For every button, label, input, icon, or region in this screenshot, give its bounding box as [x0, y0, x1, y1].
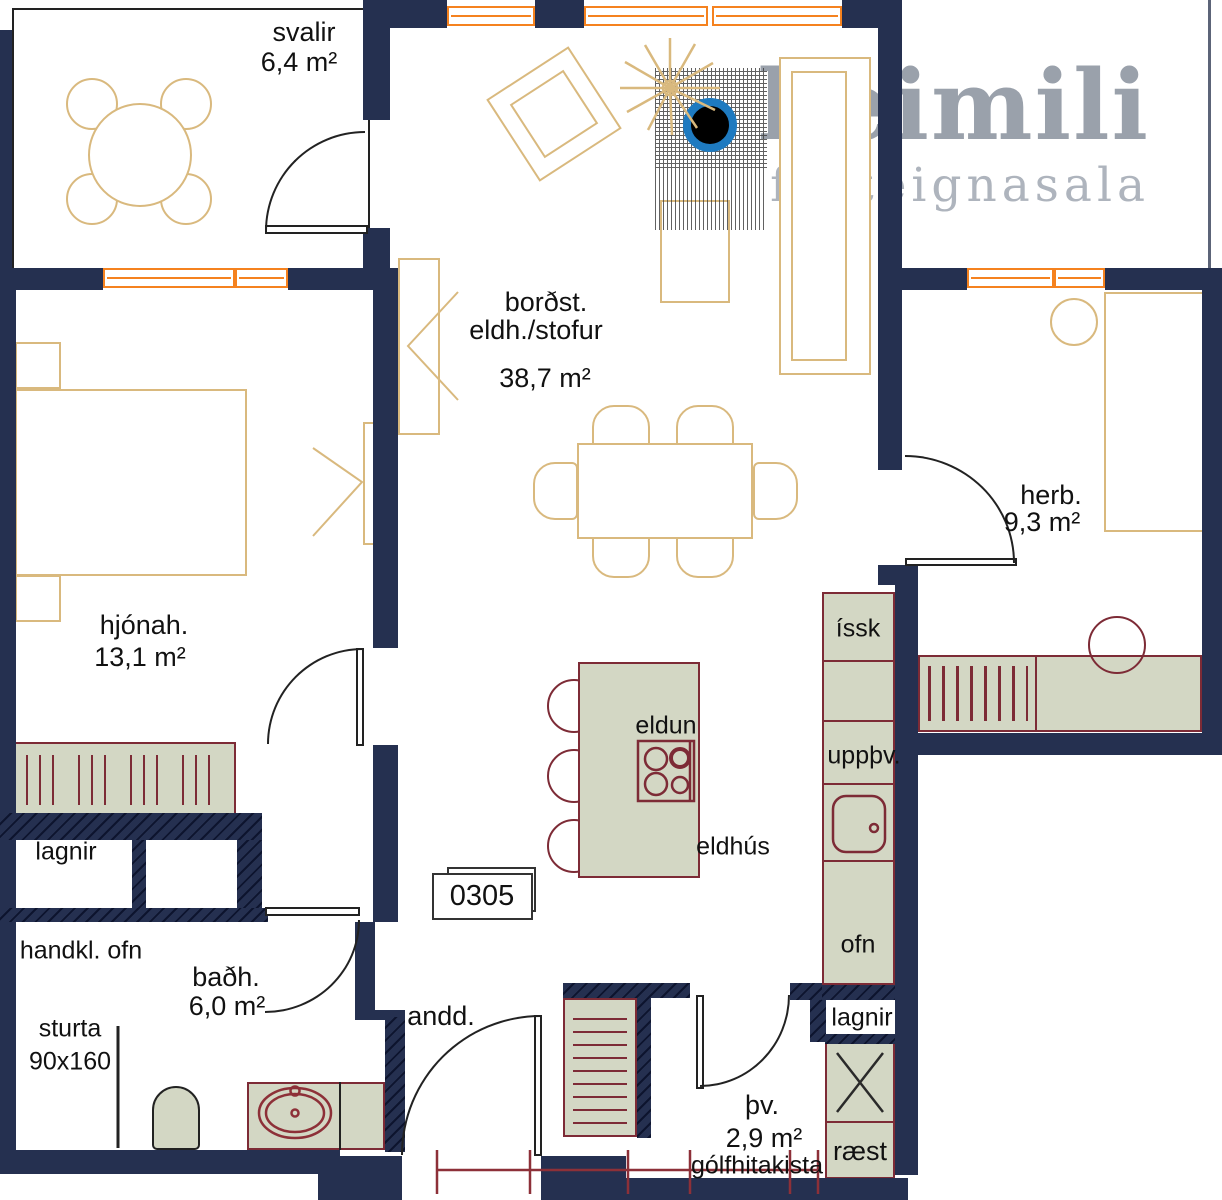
label-handkl-ofn: handkl. ofn: [20, 937, 142, 965]
wall: [373, 268, 398, 648]
window: [447, 6, 535, 26]
hatched-wall: [825, 1034, 895, 1044]
nightstand: [15, 575, 61, 622]
wall: [535, 0, 584, 28]
label-hjonah: hjónah.: [100, 611, 189, 641]
window: [1054, 268, 1105, 288]
sofa-cushions: [791, 71, 847, 361]
label-living-1: borðst.: [505, 288, 588, 318]
bathroom-door-leaf: [265, 907, 360, 916]
label-living-area: 38,7 m²: [499, 364, 591, 394]
toilet: [152, 1086, 200, 1150]
window: [584, 6, 708, 26]
dining-table: [577, 443, 753, 539]
bathroom-door-arc: [265, 920, 360, 1013]
neighbor-wall-line: [1208, 0, 1211, 268]
nightstand: [15, 342, 61, 389]
wall: [1202, 268, 1222, 755]
label-badh-area: 6,0 m²: [189, 992, 266, 1022]
label-issk: íssk: [836, 615, 880, 643]
bath-sink-counter: [247, 1082, 385, 1150]
label-thv: þv.: [745, 1091, 779, 1121]
label-lagnir-left: lagnir: [35, 838, 96, 866]
label-thv-area: 2,9 m²: [726, 1124, 803, 1154]
label-sturta-size: 90x160: [29, 1048, 111, 1076]
sink-cabinet: [822, 783, 895, 862]
dining-chair: [592, 533, 650, 578]
hall-cabinet-shelves: [573, 1012, 627, 1124]
hatched-wall: [810, 1000, 826, 1042]
hatched-wall: [0, 813, 262, 840]
window: [103, 268, 235, 288]
wall: [0, 268, 16, 1154]
wall: [878, 268, 902, 470]
bedroom-door-arc: [267, 648, 363, 744]
label-golfhitakista: gólfhitakista: [691, 1152, 823, 1180]
label-herb-area: 9,3 m²: [1004, 508, 1081, 538]
logo-marker-dot: [683, 98, 737, 152]
hatched-wall: [132, 840, 146, 910]
logo-halftone-rug: [655, 168, 767, 230]
wall: [0, 30, 12, 270]
kitchen-cabinet: [822, 660, 895, 722]
oven-cabinet: [822, 860, 895, 985]
label-hjonah-area: 13,1 m²: [94, 643, 186, 673]
double-bed: [15, 389, 247, 576]
label-uppthv: uppþv.: [827, 742, 900, 770]
label-lagnir-right: lagnir: [831, 1004, 892, 1032]
label-badh: baðh.: [192, 963, 260, 993]
wall: [902, 268, 967, 290]
window: [967, 268, 1054, 288]
label-ofn: ofn: [841, 931, 876, 959]
dining-chair: [533, 462, 578, 520]
label-andd: andd.: [407, 1002, 475, 1032]
window: [712, 6, 842, 26]
label-eldun: eldun: [635, 712, 696, 740]
wall: [318, 1156, 402, 1200]
entrance-door-arc: [401, 1015, 541, 1155]
lounge-chair: [486, 46, 622, 182]
balcony-table: [88, 103, 192, 207]
hatched-wall: [637, 998, 651, 1138]
wall: [878, 24, 902, 270]
wardrobe-door-lines: [26, 755, 226, 805]
label-unit-number: 0305: [450, 881, 515, 913]
lounge-chair-seat: [510, 70, 599, 159]
wall: [895, 585, 918, 1175]
label-svalir: svalir: [272, 18, 335, 48]
wall: [626, 1178, 908, 1200]
wall: [390, 0, 447, 28]
laundry-door-arc: [700, 995, 790, 1087]
herb-door-arc: [905, 455, 1015, 563]
label-svalir-area: 6,4 m²: [261, 48, 338, 78]
hatched-wall: [822, 985, 895, 1000]
hatched-wall: [0, 908, 268, 922]
label-eldhus: eldhús: [696, 833, 770, 861]
dining-chair: [753, 462, 798, 520]
wardrobe-mark: [313, 448, 362, 536]
floor-plan: heimili fasteignasala: [0, 0, 1222, 1200]
label-sturta: sturta: [39, 1015, 102, 1043]
wall: [363, 0, 390, 120]
window: [235, 268, 288, 288]
wall: [373, 745, 398, 922]
label-living-2: eldh./stofur: [469, 316, 603, 346]
wardrobe-living: [398, 258, 440, 435]
hatched-wall: [790, 983, 822, 1000]
herb-bed: [1104, 292, 1206, 532]
herb-chair: [1050, 298, 1098, 346]
utility-box: [825, 1042, 895, 1123]
hatched-wall: [563, 983, 690, 998]
radiator-lines: [928, 666, 1028, 721]
label-raest: ræst: [833, 1137, 887, 1167]
hatched-wall: [237, 840, 262, 910]
wall: [363, 228, 390, 270]
dining-chair: [676, 533, 734, 578]
desk-chair: [1088, 616, 1146, 674]
wall: [541, 1156, 626, 1200]
wall: [878, 565, 918, 585]
wall: [902, 733, 1204, 755]
kitchen-island: [578, 662, 700, 878]
wall: [0, 1150, 340, 1174]
